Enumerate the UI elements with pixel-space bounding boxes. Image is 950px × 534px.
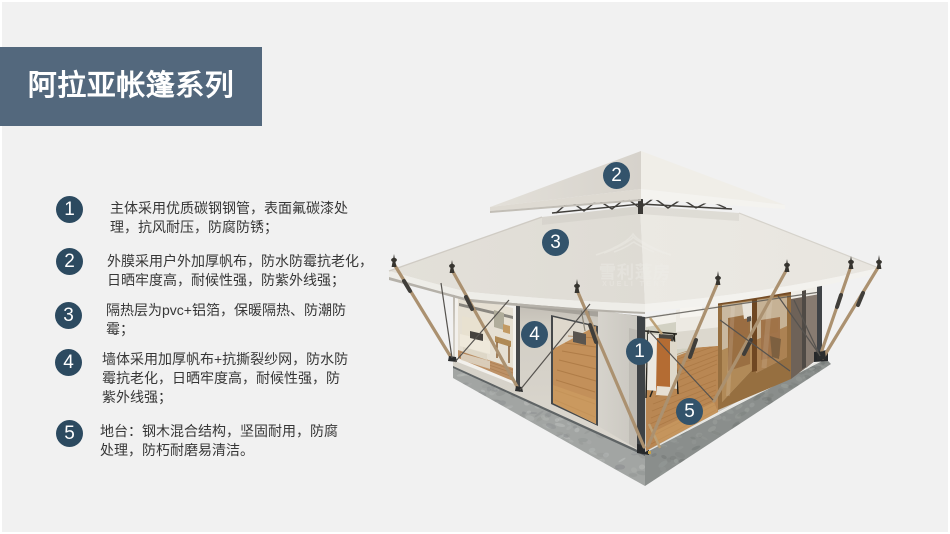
svg-text:XUELI TENT: XUELI TENT <box>602 281 668 288</box>
svg-text:雪利蓬房: 雪利蓬房 <box>599 262 671 282</box>
